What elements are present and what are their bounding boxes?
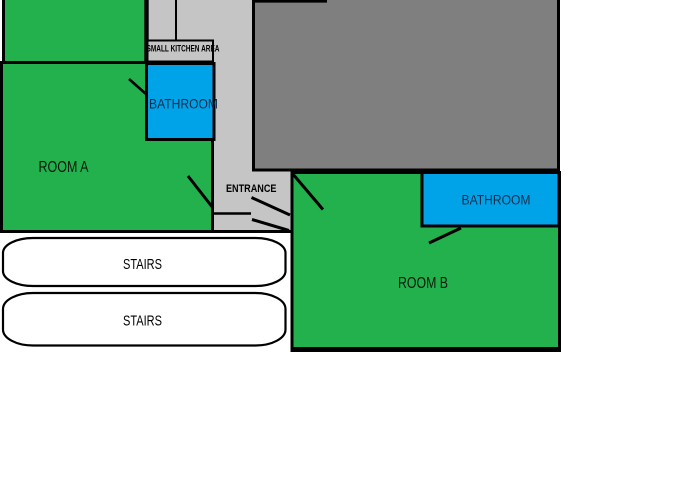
svg-text:STAIRS: STAIRS	[123, 256, 162, 273]
svg-text:STAIRS: STAIRS	[123, 313, 162, 330]
svg-text:BATHROOM: BATHROOM	[149, 96, 218, 112]
svg-text:SMALL KITCHEN AREA: SMALL KITCHEN AREA	[147, 44, 220, 54]
svg-text:ROOM A: ROOM A	[39, 159, 90, 176]
svg-text:ROOM B: ROOM B	[398, 275, 448, 292]
svg-text:ENTRANCE: ENTRANCE	[226, 183, 277, 195]
svg-text:BATHROOM: BATHROOM	[462, 192, 531, 208]
